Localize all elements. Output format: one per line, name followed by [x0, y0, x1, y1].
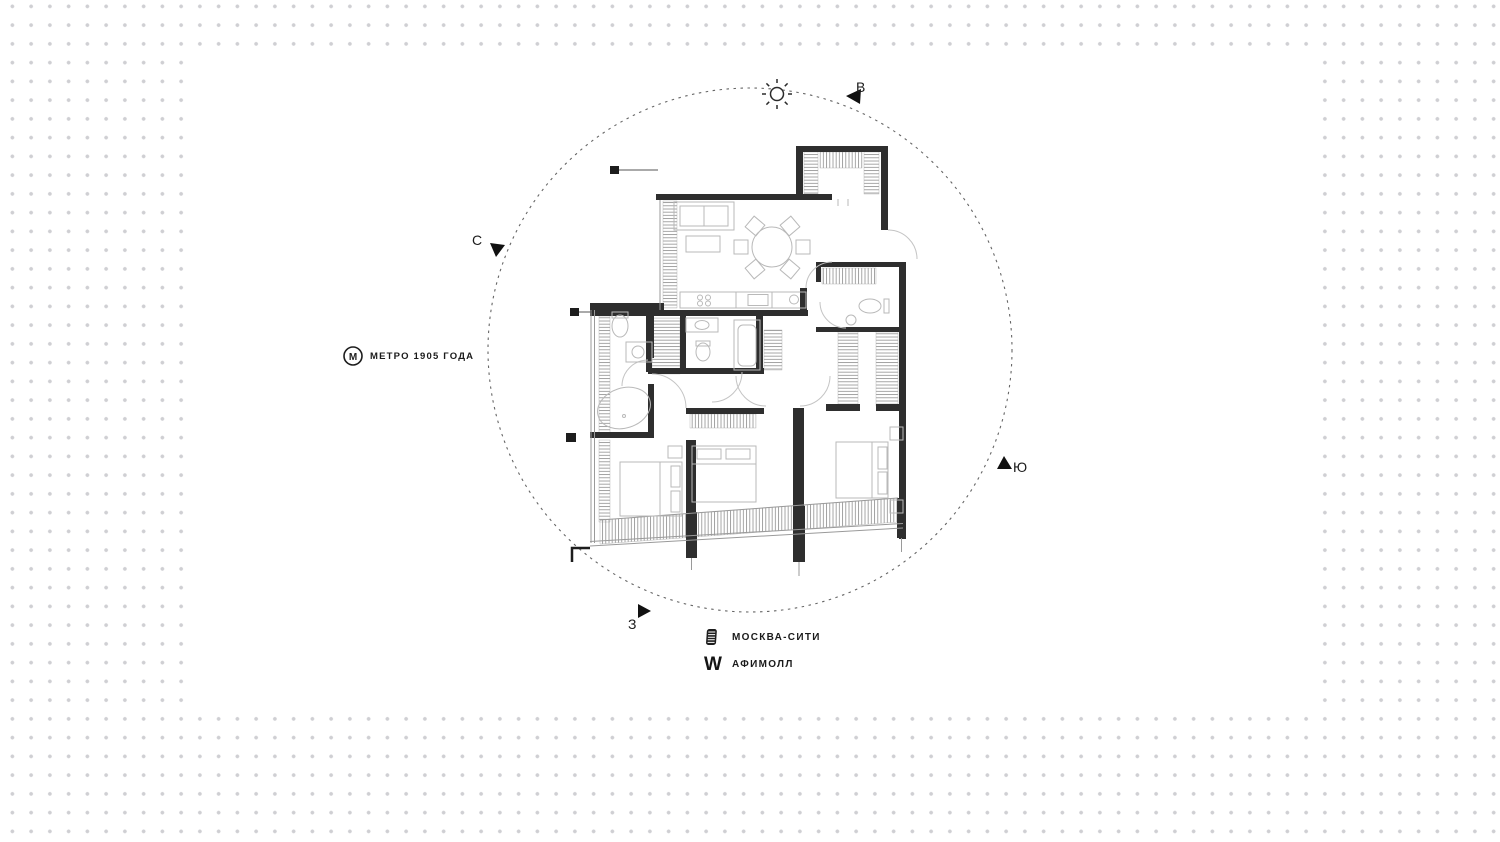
guest-wc-fixtures [846, 299, 889, 325]
compass-east-label: В [856, 79, 866, 95]
section-marks [566, 166, 658, 562]
walls [590, 146, 906, 562]
metro-station-label: МЕТРО 1905 ГОДА [370, 351, 474, 362]
north-arrow-icon [490, 243, 505, 257]
compass-north-label: С [472, 232, 483, 248]
compass-west-label: З [628, 616, 637, 632]
floor-plan-scene: М W [0, 0, 1500, 842]
metro-icon-letter: М [349, 352, 357, 363]
kitchen-counter [680, 292, 806, 308]
afimall-w-icon: W [704, 654, 722, 675]
bed-2 [692, 446, 756, 502]
dining-table [734, 216, 810, 279]
metro-icon: М [344, 347, 362, 365]
floor-plan [566, 146, 917, 576]
moscow-city-tower-icon [706, 629, 717, 645]
coffee-table [686, 236, 720, 252]
bathroom-second-fixtures [686, 318, 760, 370]
south-arrow-icon [997, 456, 1012, 469]
sofa [674, 202, 734, 230]
orientation-circle [488, 88, 1012, 612]
afimall-label: АФИМОЛЛ [732, 659, 794, 670]
compass-south-label: Ю [1013, 459, 1028, 475]
west-arrow-icon [638, 604, 651, 618]
hatch-areas [599, 152, 898, 544]
bed-1 [620, 446, 682, 516]
moscow-city-label: МОСКВА-СИТИ [732, 632, 821, 643]
sun-icon [762, 79, 792, 109]
